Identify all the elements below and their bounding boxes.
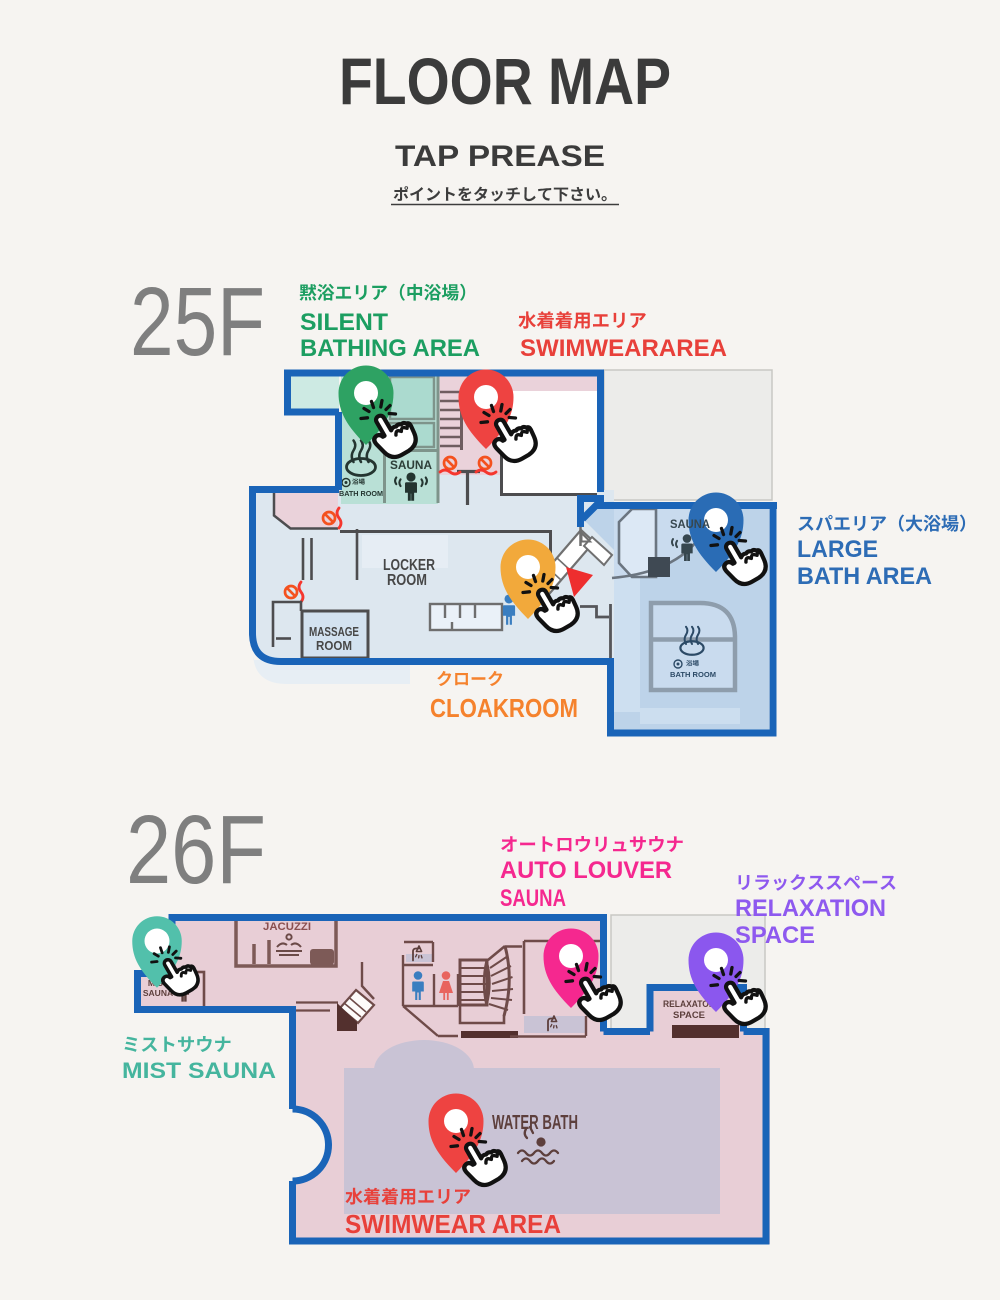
svg-text:25F: 25F (130, 267, 265, 376)
svg-text:JACUZZI: JACUZZI (263, 921, 311, 933)
svg-text:FLOOR MAP: FLOOR MAP (339, 44, 671, 118)
svg-text:SAUNA: SAUNA (390, 458, 432, 472)
svg-text:BATH ROOM: BATH ROOM (670, 672, 716, 679)
svg-text:SAUNA: SAUNA (670, 517, 710, 531)
svg-text:AUTO LOUVER: AUTO LOUVER (500, 857, 672, 884)
svg-text:MIST SAUNA: MIST SAUNA (122, 1058, 276, 1083)
svg-text:SPACE: SPACE (735, 922, 815, 949)
svg-text:MASSAGE: MASSAGE (309, 625, 359, 639)
svg-text:26F: 26F (126, 795, 266, 904)
svg-text:LARGE: LARGE (797, 536, 878, 563)
svg-text:SILENT: SILENT (300, 309, 388, 336)
svg-text:BATHING AREA: BATHING AREA (300, 335, 480, 362)
svg-text:BATH AREA: BATH AREA (797, 563, 932, 590)
svg-text:SWIMWEARAREA: SWIMWEARAREA (520, 335, 727, 362)
svg-text:BATH ROOM: BATH ROOM (339, 491, 383, 498)
svg-text:ROOM: ROOM (316, 639, 352, 653)
svg-text:RELAXATION: RELAXATION (735, 895, 886, 922)
svg-text:SAUNA: SAUNA (500, 885, 566, 912)
svg-text:TAP PREASE: TAP PREASE (395, 140, 605, 173)
svg-text:CLOAKROOM: CLOAKROOM (430, 693, 578, 723)
svg-text:SPACE: SPACE (673, 1010, 705, 1021)
svg-text:WATER BATH: WATER BATH (492, 1112, 578, 1134)
svg-text:ROOM: ROOM (387, 572, 427, 589)
svg-text:SWIMWEAR AREA: SWIMWEAR AREA (345, 1209, 561, 1239)
